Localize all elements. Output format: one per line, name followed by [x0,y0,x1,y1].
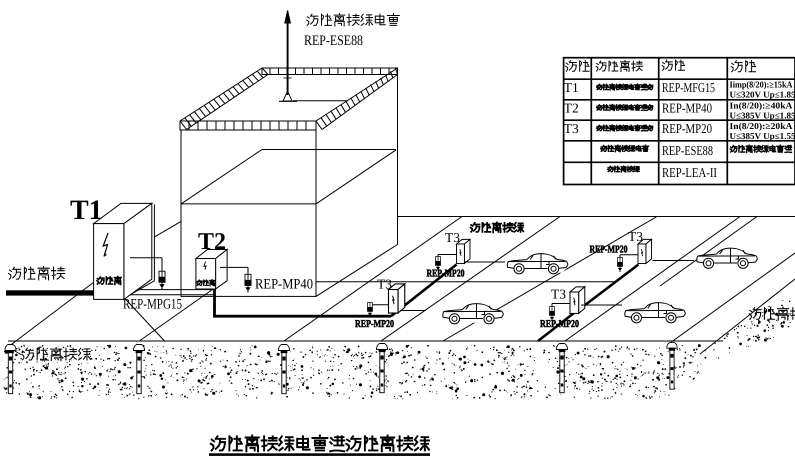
svg-text:REP-MP20: REP-MP20 [355,319,394,330]
svg-text:U≤320V Up≤1.85: U≤320V Up≤1.85 [730,90,795,100]
svg-text:REP-MP40: REP-MP40 [255,277,313,293]
svg-text:In(8/20):≥40kA: In(8/20):≥40kA [730,101,794,111]
svg-text:REP-MP20: REP-MP20 [662,121,712,136]
svg-text:T2: T2 [198,229,226,255]
svg-text:T3: T3 [551,287,566,302]
svg-text:In(8/20):≥20kA: In(8/20):≥20kA [730,121,794,131]
svg-text:T3: T3 [377,277,392,292]
svg-text:T3: T3 [564,121,579,136]
svg-text:U≤385V Up≤1.85: U≤385V Up≤1.85 [730,111,795,121]
svg-text:REP-MP20: REP-MP20 [590,245,628,256]
svg-text:REP-LEA-II: REP-LEA-II [662,165,717,180]
svg-text:T1: T1 [564,80,579,95]
svg-text:REP-ESE88: REP-ESE88 [304,33,363,49]
svg-text:T2: T2 [564,101,579,116]
svg-text:Iimp(8/20):≥15kA: Iimp(8/20):≥15kA [730,80,793,90]
svg-text:REP-MP40: REP-MP40 [662,101,712,116]
svg-text:REP-MP20: REP-MP20 [427,269,465,280]
svg-text:T1: T1 [70,195,103,226]
svg-text:REP-MPG15: REP-MPG15 [123,297,182,313]
svg-text:T3: T3 [628,229,643,244]
svg-text:U≤385V Up≤1.55: U≤385V Up≤1.55 [730,131,795,141]
svg-text:REP-MP20: REP-MP20 [540,319,579,330]
svg-text:T3: T3 [445,230,460,245]
svg-text:REP-MFG15: REP-MFG15 [662,80,715,95]
svg-text:REP-ESE88: REP-ESE88 [662,143,713,158]
